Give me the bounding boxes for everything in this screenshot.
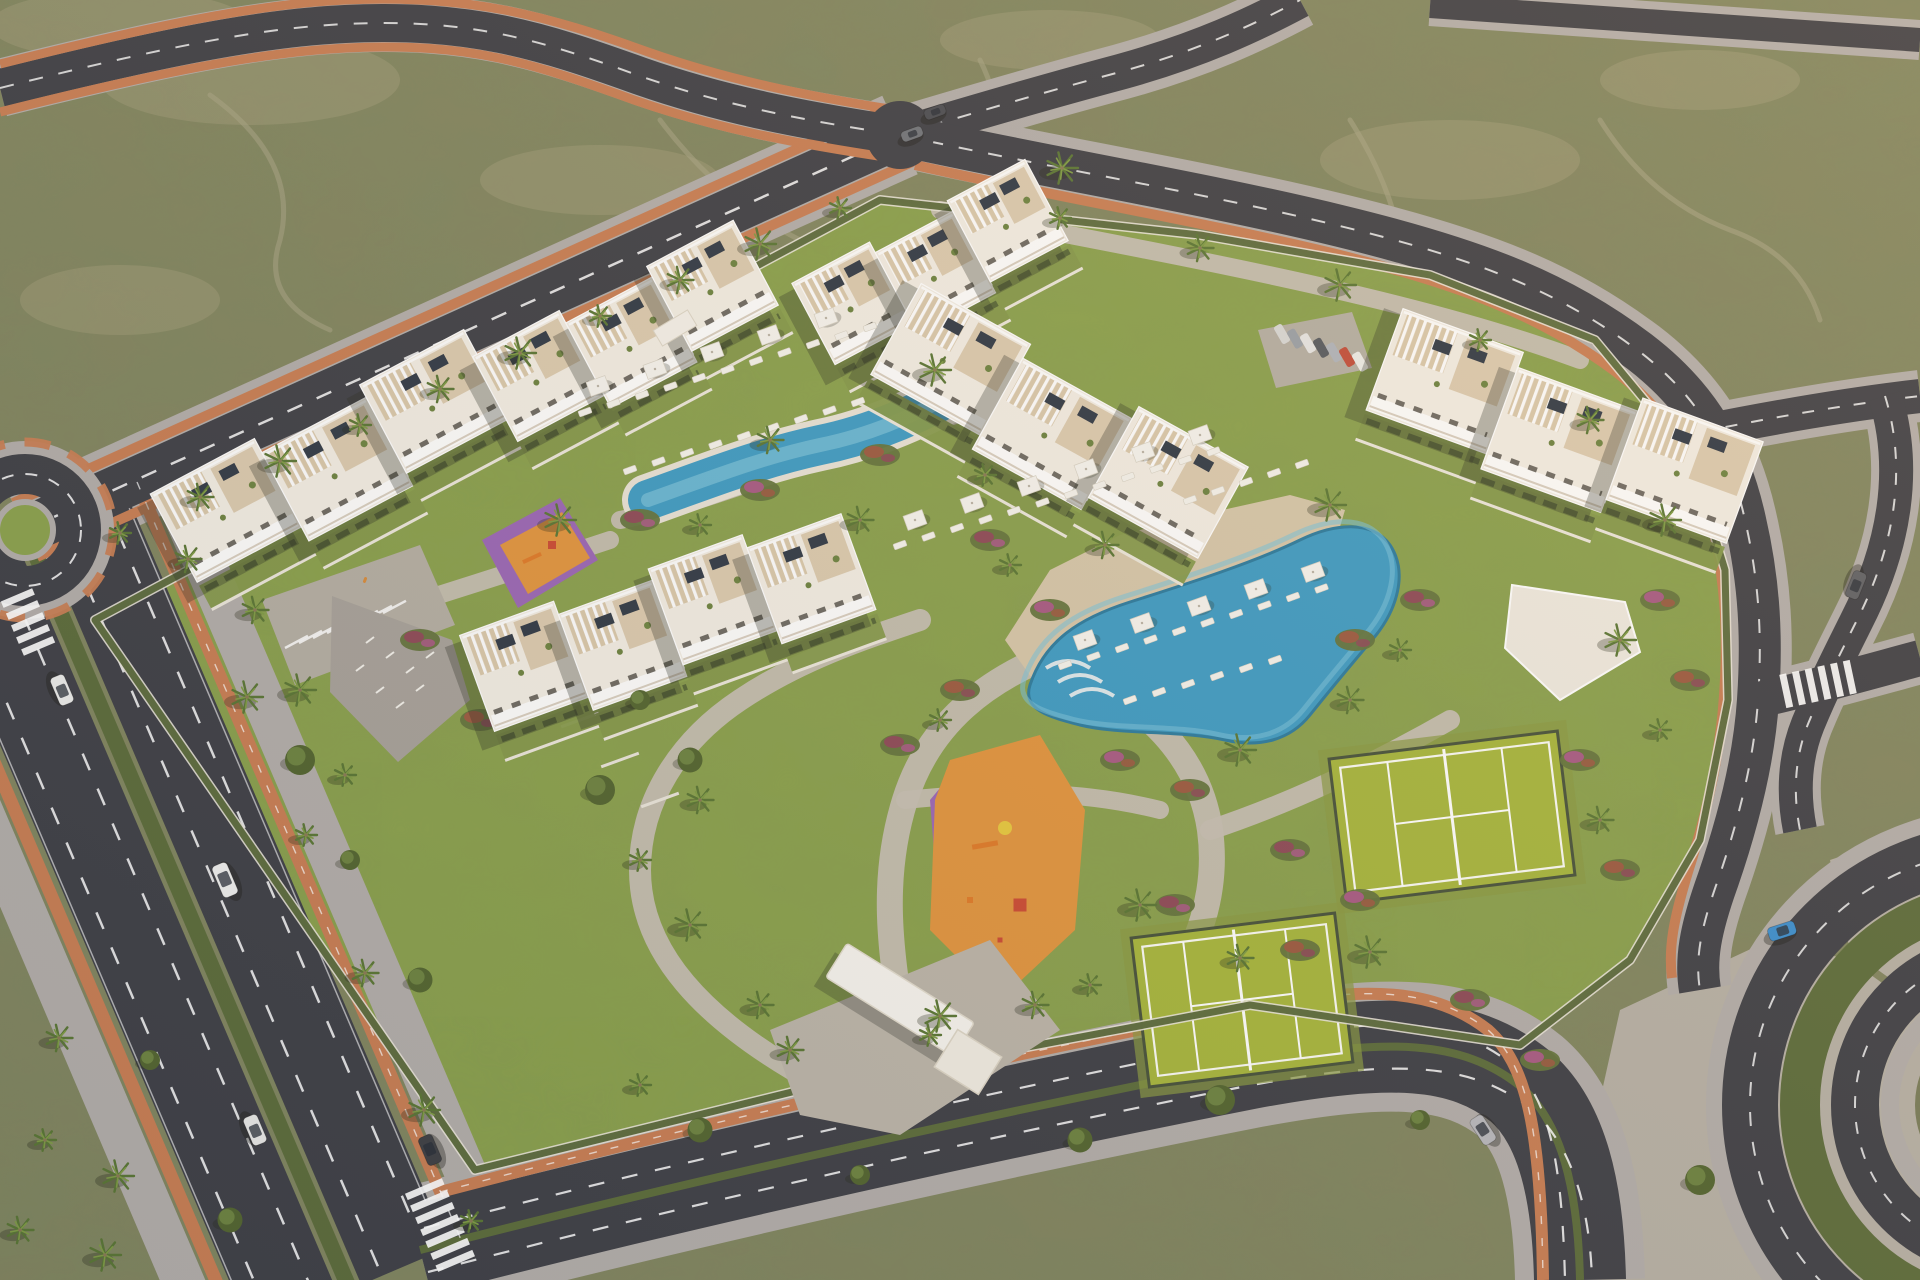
palm-trunk	[343, 773, 347, 777]
flowers	[1621, 869, 1635, 877]
flowers	[1524, 1051, 1544, 1063]
flowers	[1541, 1059, 1555, 1067]
tree-highlight	[679, 749, 695, 765]
scene-svg	[0, 0, 1920, 1280]
palm-trunk	[1060, 166, 1064, 170]
palm-trunk	[1588, 418, 1592, 422]
flower-bed	[880, 734, 920, 756]
flower-bed	[860, 444, 900, 466]
play-equipment	[548, 541, 556, 549]
palm-trunk	[118, 531, 122, 535]
flowers	[1674, 671, 1694, 683]
flowers	[1174, 781, 1194, 793]
palm-trunk	[278, 459, 282, 463]
palm-trunk	[298, 688, 302, 692]
palm-trunk	[422, 1108, 426, 1112]
tree-highlight	[1411, 1111, 1423, 1123]
palm-trunk	[103, 1253, 107, 1257]
palm-trunk	[938, 1014, 942, 1018]
palm-trunk	[698, 523, 702, 527]
palm-trunk	[438, 387, 442, 391]
palm-trunk	[1398, 648, 1402, 652]
flower-bed	[1030, 599, 1070, 621]
flower-bed	[1400, 589, 1440, 611]
palm-trunk	[638, 858, 642, 862]
aerial-render-resort-masterplan	[0, 0, 1920, 1280]
flowers	[1284, 941, 1304, 953]
flowers	[1581, 759, 1595, 767]
flower-bed	[1340, 889, 1380, 911]
flowers	[864, 446, 884, 458]
palm-trunk	[928, 1033, 932, 1037]
flower-bed	[1100, 749, 1140, 771]
sand-patch	[20, 265, 220, 335]
tree-highlight	[141, 1051, 153, 1063]
tennis-court-upper	[1318, 720, 1586, 914]
palm-trunk	[198, 495, 202, 499]
flowers	[884, 736, 904, 748]
flowers	[881, 454, 895, 462]
palm-trunk	[788, 1048, 792, 1052]
roundabout-island	[0, 502, 53, 558]
sand-patch	[1600, 50, 1800, 110]
palm-trunk	[1478, 338, 1482, 342]
flowers	[421, 639, 435, 647]
tree-highlight	[287, 747, 306, 766]
flowers	[991, 539, 1005, 547]
tree-highlight	[631, 691, 643, 703]
palm-trunk	[1238, 956, 1242, 960]
flowers	[1564, 751, 1584, 763]
flower-bed	[1520, 1049, 1560, 1071]
play-equipment	[967, 897, 973, 903]
flowers	[1421, 599, 1435, 607]
flower-bed	[740, 479, 780, 501]
palm-trunk	[358, 423, 362, 427]
palm-trunk	[518, 351, 522, 355]
flowers	[1356, 639, 1370, 647]
flowers	[1051, 609, 1065, 617]
flowers	[1104, 751, 1124, 763]
flowers	[624, 511, 644, 523]
flower-bed	[1155, 894, 1195, 916]
palm-trunk	[638, 1083, 642, 1087]
flower-bed	[1270, 839, 1310, 861]
flower-bed	[1560, 749, 1600, 771]
flowers	[1034, 601, 1054, 613]
flowers	[1644, 591, 1664, 603]
flowers	[1121, 759, 1135, 767]
flowers	[1301, 949, 1315, 957]
palm-trunk	[469, 1219, 473, 1223]
tree-highlight	[587, 777, 606, 796]
palm-trunk	[858, 518, 862, 522]
flowers	[1661, 599, 1675, 607]
flowers	[641, 519, 655, 527]
palm-trunk	[245, 695, 249, 699]
tree-highlight	[1687, 1167, 1706, 1186]
palm-trunk	[1663, 518, 1667, 522]
tree-highlight	[1069, 1129, 1085, 1145]
yellow-umbrella	[998, 821, 1012, 835]
palm-trunk	[1328, 503, 1332, 507]
flower-bed	[1450, 989, 1490, 1011]
flowers	[1454, 991, 1474, 1003]
flowers	[1191, 789, 1205, 797]
flowers	[961, 689, 975, 697]
tree-highlight	[1207, 1087, 1226, 1106]
flowers	[1361, 899, 1375, 907]
palm-trunk	[1198, 246, 1202, 250]
flower-bed	[970, 529, 1010, 551]
palm-trunk	[1338, 283, 1342, 287]
flowers	[974, 531, 994, 543]
flowers	[1291, 849, 1305, 857]
palm-trunk	[57, 1036, 61, 1040]
palm-trunk	[758, 242, 762, 246]
palm-trunk	[363, 971, 367, 975]
flower-bed	[1170, 779, 1210, 801]
palm-trunk	[558, 518, 562, 522]
palm-trunk	[1008, 563, 1012, 567]
palm-trunk	[698, 798, 702, 802]
flowers	[1604, 861, 1624, 873]
tree-highlight	[219, 1209, 235, 1225]
flowers	[901, 744, 915, 752]
flowers	[1691, 679, 1705, 687]
tree-highlight	[689, 1119, 705, 1135]
play-equipment	[1014, 899, 1027, 912]
flowers	[1471, 999, 1485, 1007]
flowers	[944, 681, 964, 693]
palm-trunk	[304, 833, 308, 837]
palm-trunk	[688, 923, 692, 927]
palm-trunk	[1103, 543, 1107, 547]
palm-trunk	[598, 314, 602, 318]
palm-trunk	[1658, 728, 1662, 732]
flowers	[1339, 631, 1359, 643]
palm-trunk	[1238, 748, 1242, 752]
palm-trunk	[1088, 983, 1092, 987]
flower-bed	[1670, 669, 1710, 691]
palm-trunk	[186, 557, 190, 561]
intersection	[866, 101, 934, 169]
flowers	[761, 489, 775, 497]
flowers	[1404, 591, 1424, 603]
flowers	[1274, 841, 1294, 853]
flower-bed	[400, 629, 440, 651]
tree-highlight	[409, 969, 425, 985]
palm-trunk	[838, 206, 842, 210]
palm-trunk	[253, 608, 257, 612]
palm-trunk	[758, 1003, 762, 1007]
tree-highlight	[851, 1166, 863, 1178]
palm-trunk	[933, 368, 937, 372]
flowers	[744, 481, 764, 493]
flowers	[1159, 896, 1179, 908]
palm-trunk	[1368, 950, 1372, 954]
tennis-court-lower	[1120, 902, 1364, 1098]
palm-trunk	[1618, 638, 1622, 642]
palm-trunk	[43, 1138, 47, 1142]
palm-trunk	[768, 438, 772, 442]
flowers	[1176, 904, 1190, 912]
flower-bed	[1280, 939, 1320, 961]
flowers	[1344, 891, 1364, 903]
flowers	[404, 631, 424, 643]
palm-trunk	[18, 1228, 22, 1232]
flower-bed	[940, 679, 980, 701]
flower-bed	[620, 509, 660, 531]
tree-highlight	[341, 851, 353, 863]
palm-trunk	[1033, 1003, 1037, 1007]
palm-trunk	[1598, 818, 1602, 822]
palm-trunk	[678, 278, 682, 282]
palm-trunk	[983, 473, 987, 477]
palm-trunk	[1138, 903, 1142, 907]
play-equipment	[998, 938, 1003, 943]
palm-trunk	[1058, 216, 1062, 220]
flower-bed	[1640, 589, 1680, 611]
palm-trunk	[116, 1174, 120, 1178]
flower-bed	[1600, 859, 1640, 881]
palm-trunk	[938, 718, 942, 722]
flower-bed	[1335, 629, 1375, 651]
palm-trunk	[1348, 698, 1352, 702]
